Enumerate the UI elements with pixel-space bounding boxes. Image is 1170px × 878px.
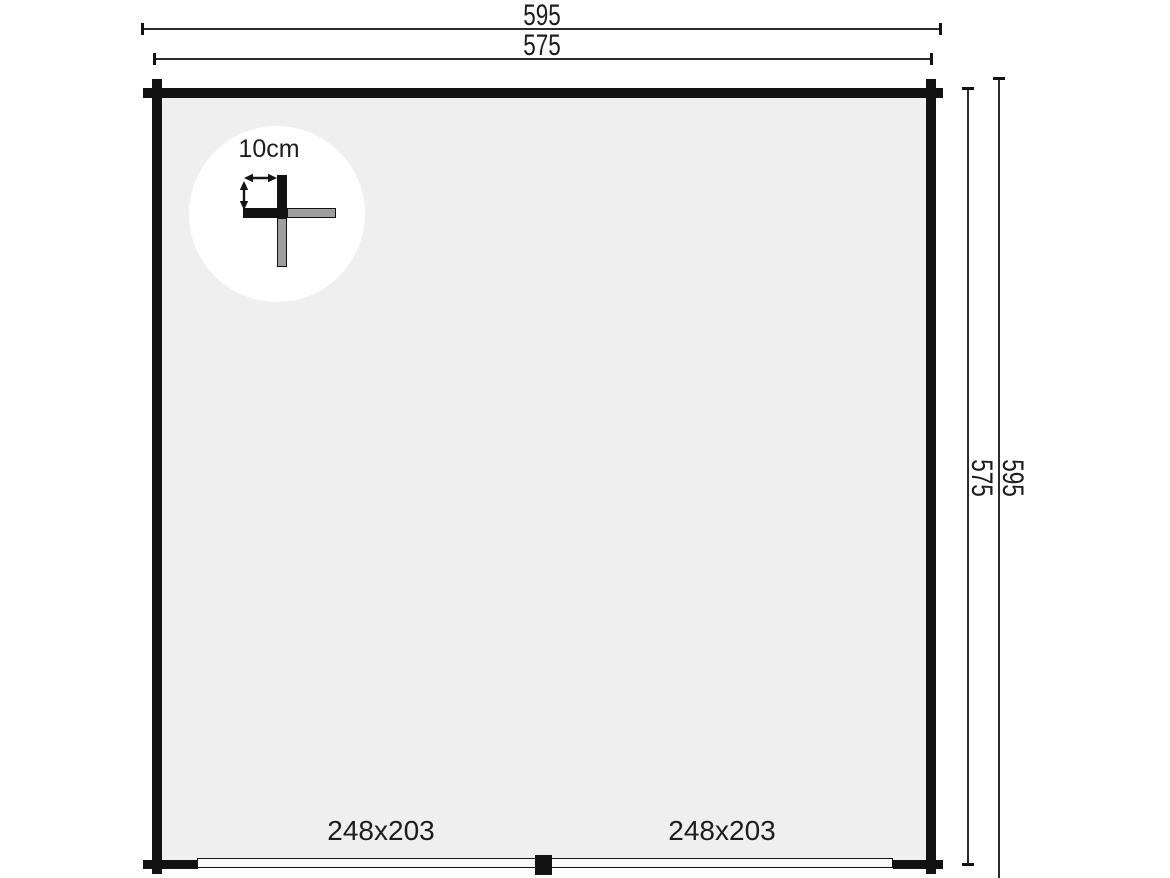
dimension-tick — [141, 23, 144, 35]
vertical-double-arrow-icon — [240, 181, 248, 210]
door-center-post — [535, 855, 552, 875]
dimension-label-top-outer: 595 — [482, 1, 602, 31]
door-size-label-left: 248x203 — [281, 817, 481, 845]
dimension-tick — [962, 863, 974, 866]
dimension-label-top-inner: 575 — [482, 31, 602, 61]
dimension-tick — [930, 53, 933, 65]
dimension-tick — [962, 87, 974, 90]
dimension-tick — [153, 53, 156, 65]
wall-bottom-left-segment — [143, 860, 198, 869]
wall-bottom-right-segment — [893, 860, 943, 869]
dimension-label-right-outer: 595 — [997, 418, 1027, 538]
door-size-label-right: 248x203 — [622, 817, 822, 845]
dimension-label-right-inner: 575 — [966, 418, 996, 538]
wall-right — [926, 79, 936, 874]
wall-top — [143, 88, 943, 98]
detail-crossing-log-vertical — [277, 218, 287, 267]
wall-left — [152, 79, 162, 874]
dimension-tick — [993, 77, 1005, 80]
dimension-tick — [939, 23, 942, 35]
corner-detail-measure-label: 10cm — [219, 136, 319, 162]
floor-plan-drawing: 248x203 248x203 595 575 575 595 10cm — [0, 0, 1170, 878]
horizontal-double-arrow-icon — [244, 174, 277, 182]
double-arrow-icons — [236, 168, 296, 218]
